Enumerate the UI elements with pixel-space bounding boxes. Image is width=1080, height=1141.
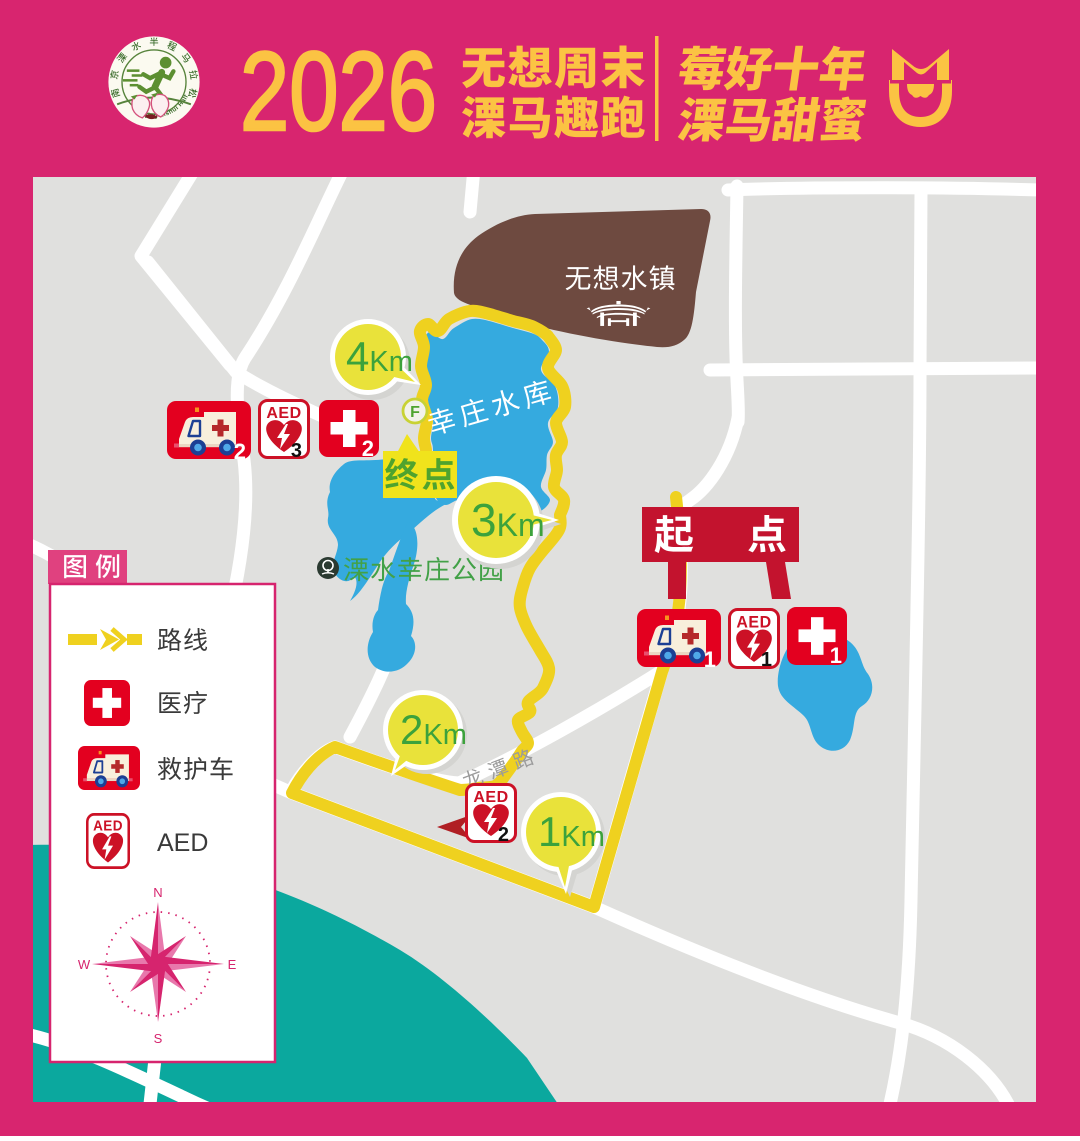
svg-text:3: 3 — [291, 440, 302, 462]
svg-text:W: W — [78, 957, 91, 972]
svg-text:1: 1 — [704, 647, 716, 672]
svg-text:2026: 2026 — [240, 29, 437, 154]
svg-text:2: 2 — [362, 436, 374, 461]
svg-text:1: 1 — [830, 643, 842, 668]
svg-text:E: E — [228, 957, 237, 972]
svg-text:F: F — [410, 404, 420, 421]
svg-text:1: 1 — [761, 649, 772, 671]
svg-text:AED: AED — [157, 829, 208, 857]
svg-text:2: 2 — [234, 439, 246, 464]
svg-text:2: 2 — [498, 824, 509, 846]
svg-text:S: S — [154, 1031, 163, 1046]
svg-text:N: N — [153, 885, 162, 900]
